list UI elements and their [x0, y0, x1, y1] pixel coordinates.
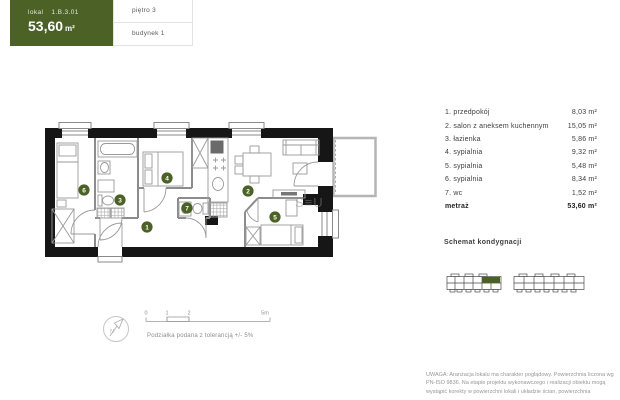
lokal-label: lokal — [28, 9, 43, 16]
room-legend: 1. przedpokój8,03 m²2. salon z aneksem k… — [445, 106, 597, 213]
floor-plan: S≡U 1 2 3 4 5 6 7 — [40, 110, 385, 265]
legend-room-name: 4. sypialnia — [445, 149, 482, 156]
scale-bar: 0 1 2 5m — [143, 308, 277, 328]
room-marker-7-label: 7 — [185, 205, 189, 212]
legend-room-area: 9,32 m² — [572, 149, 597, 156]
furniture — [52, 138, 319, 245]
scale-tick-0: 0 — [144, 311, 147, 317]
unit-area-value: 53,60 — [28, 18, 63, 34]
scale-tick-1: 1 — [165, 311, 168, 317]
room-marker-1: 1 — [141, 221, 152, 232]
scale-tolerance-note: Podziałka podana z tolerancją +/- 5% — [147, 333, 253, 339]
building-schematic-right — [512, 272, 586, 295]
room-list: 1. przedpokój8,03 m²2. salon z aneksem k… — [445, 106, 597, 200]
unit-area-unit: m² — [65, 24, 75, 33]
legend-room-name: 6. sypialnia — [445, 176, 482, 183]
room-marker-2: 2 — [242, 185, 253, 196]
room-marker-5: 5 — [269, 211, 280, 222]
legend-room-row: 1. przedpokój8,03 m² — [445, 106, 597, 119]
legend-room-name: 1. przedpokój — [445, 109, 490, 116]
unit-meta-table: piętro 3 budynek 1 — [113, 0, 193, 46]
legend-room-row: 4. sypialnia9,32 m² — [445, 146, 597, 159]
legend-room-area: 5,86 m² — [572, 136, 597, 143]
unit-area: 53,60m² — [28, 19, 113, 36]
room-marker-6: 6 — [78, 184, 89, 195]
disclaimer-text: UWAGA: Aranżacja lokalu ma charakter pog… — [426, 371, 619, 396]
room-marker-6-label: 6 — [82, 187, 86, 194]
legend-room-name: 3. łazienka — [445, 136, 481, 143]
legend-room-row: 7. wc1,52 m² — [445, 186, 597, 199]
balcony — [334, 138, 376, 196]
legend-room-row: 3. łazienka5,86 m² — [445, 133, 597, 146]
room-marker-4: 4 — [161, 172, 172, 183]
highlighted-unit — [482, 277, 500, 283]
room-marker-3: 3 — [114, 194, 125, 205]
scale-tick-2: 2 — [187, 311, 190, 317]
legend-room-row: 5. sypialnia5,48 m² — [445, 160, 597, 173]
building-cell: budynek 1 — [114, 23, 192, 46]
building-schematic-left — [445, 272, 503, 295]
legend-room-name: 5. sypialnia — [445, 163, 482, 170]
plan-watermark: S≡U — [295, 195, 324, 210]
legend-room-area: 5,48 m² — [572, 163, 597, 170]
legend-total-row: metraż 53,60 m² — [445, 200, 597, 213]
legend-room-area: 8,34 m² — [572, 176, 597, 183]
legend-room-name: 2. salon z aneksem kuchennym — [445, 123, 549, 130]
schemat-title: Schemat kondygnacji — [444, 239, 522, 246]
legend-total-area: 53,60 m² — [567, 203, 597, 210]
legend-room-area: 1,52 m² — [572, 190, 597, 197]
floor-cell: piętro 3 — [114, 0, 192, 23]
room-marker-5-label: 5 — [273, 214, 277, 221]
legend-room-row: 2. salon z aneksem kuchennym15,05 m² — [445, 119, 597, 132]
legend-room-row: 6. sypialnia8,34 m² — [445, 173, 597, 186]
unit-id: 1.B.3.01 — [51, 9, 78, 16]
scale-tick-5m: 5m — [261, 311, 269, 317]
legend-room-area: 15,05 m² — [568, 123, 597, 130]
legend-room-area: 8,03 m² — [572, 109, 597, 116]
unit-header-card: lokal1.B.3.01 53,60m² — [10, 0, 113, 46]
legend-room-name: 7. wc — [445, 190, 462, 197]
compass-icon: N — [99, 312, 133, 346]
room-marker-1-label: 1 — [145, 224, 149, 231]
room-marker-3-label: 3 — [118, 197, 122, 204]
unit-id-line: lokal1.B.3.01 — [28, 9, 113, 16]
room-marker-4-label: 4 — [165, 175, 169, 182]
compass-north-label: N — [110, 329, 114, 335]
legend-total-label: metraż — [445, 203, 469, 210]
room-marker-2-label: 2 — [246, 188, 250, 195]
room-marker-7: 7 — [181, 202, 192, 213]
